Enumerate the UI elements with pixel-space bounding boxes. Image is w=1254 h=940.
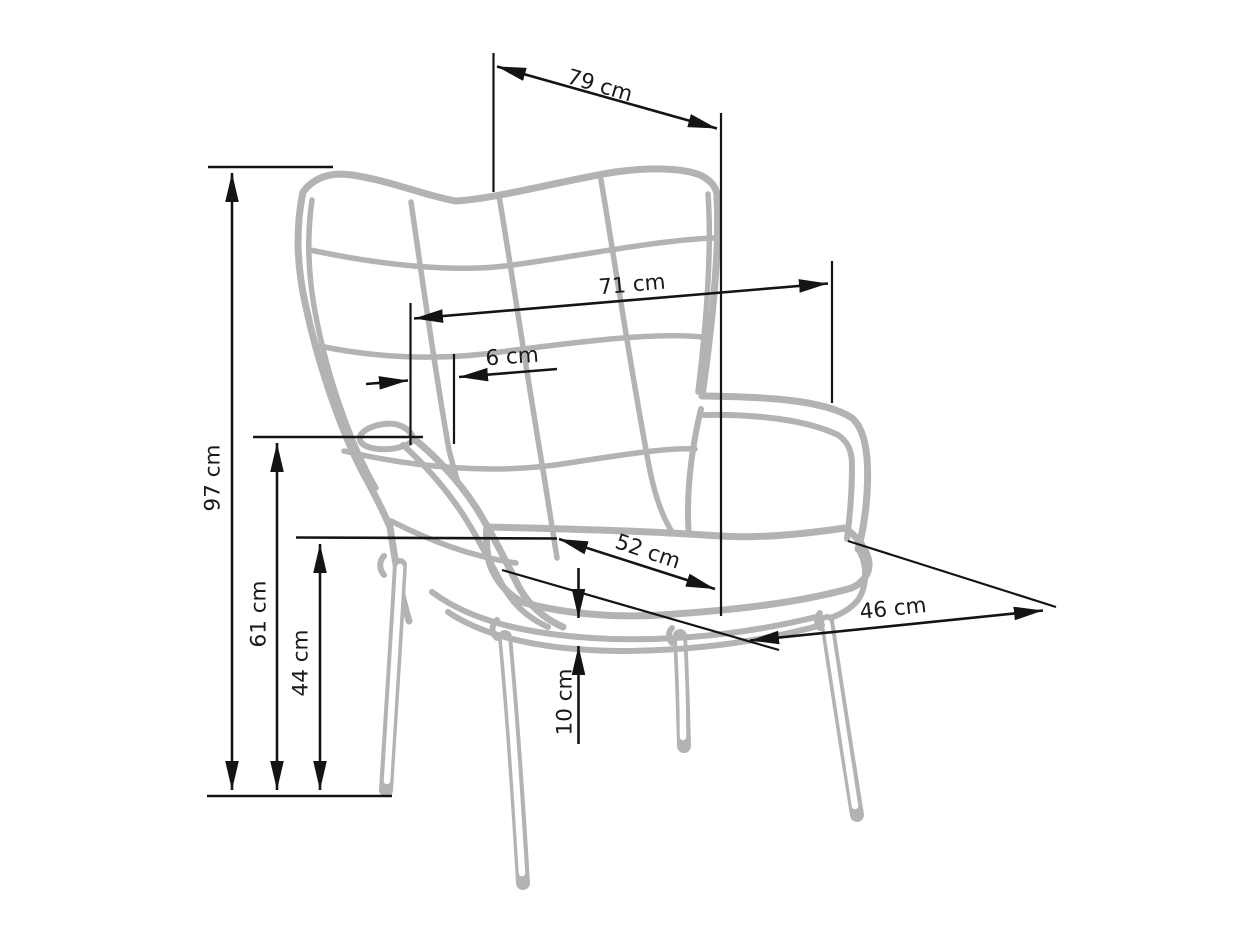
- chair-seat-cushion: [486, 527, 869, 616]
- chair-right-armrest-inner: [704, 415, 852, 539]
- chair-quilt-seam-horizontal-3: [344, 449, 695, 469]
- top-tick: [296, 538, 557, 539]
- dimension-label: 61 cm: [247, 581, 272, 648]
- dimension-label: 6 cm: [485, 343, 540, 372]
- dimension-annotations: 79 cm 71 cm 6 cm 97 cm 61 cm: [201, 53, 1056, 796]
- dimension-label: 79 cm: [564, 65, 635, 108]
- dimension-arrow-left: [366, 381, 408, 385]
- armchair-illustration: [298, 169, 869, 883]
- chair-quilt-seam-horizontal-1: [310, 238, 714, 268]
- dimension-label: 44 cm: [289, 630, 314, 697]
- chair-quilt-seam-vertical-2: [499, 196, 557, 558]
- chair-leg-front-right-core: [827, 623, 855, 806]
- dimension-arrow-right: [459, 369, 557, 377]
- dimension-base-thickness: 10 cm: [553, 568, 579, 744]
- dimension-label: 10 cm: [553, 669, 578, 736]
- dimension-diagram-page: 79 cm 71 cm 6 cm 97 cm 61 cm: [0, 0, 1254, 940]
- chair-quilt-seam-vertical-3: [601, 180, 672, 532]
- dimension-label: 46 cm: [858, 593, 927, 625]
- dimension-seat-width: 52 cm: [559, 529, 715, 589]
- armchair-dimension-diagram: 79 cm 71 cm 6 cm 97 cm 61 cm: [0, 0, 1254, 940]
- dimension-label: 71 cm: [598, 270, 667, 301]
- chair-leg-back-right-core: [680, 638, 683, 737]
- chair-right-arm-crease: [688, 409, 701, 534]
- chair-leg-bracket-back-left: [380, 556, 384, 575]
- dimension-label: 97 cm: [201, 445, 226, 512]
